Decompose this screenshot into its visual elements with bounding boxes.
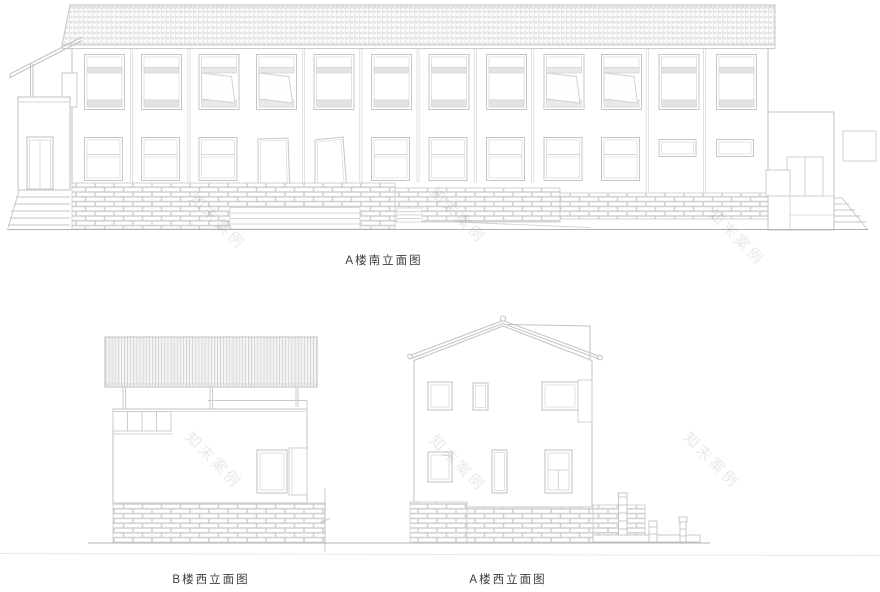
south-small-steps <box>397 208 422 222</box>
upper-window <box>659 55 699 110</box>
lower-window <box>544 138 582 181</box>
b-west-roof-posts <box>123 387 298 409</box>
south-left-porch <box>18 97 70 190</box>
south-left-stairs <box>8 191 70 228</box>
a-west-elevation <box>408 316 700 543</box>
upper-window <box>314 55 354 110</box>
lower-window <box>142 138 180 181</box>
upper-window-open <box>602 55 642 110</box>
lower-window <box>85 138 123 181</box>
lower-window <box>372 138 410 181</box>
lower-window <box>199 138 237 181</box>
south-right-annex <box>766 112 876 230</box>
lower-window <box>602 138 640 181</box>
drawing-canvas <box>0 0 880 592</box>
lower-window-small <box>659 140 696 157</box>
south-upper-windows <box>85 55 757 110</box>
b-west-railing <box>113 412 173 435</box>
upper-window-open <box>257 55 297 110</box>
sheet-baseline <box>0 554 880 556</box>
side-structure <box>843 131 876 161</box>
ramp-line <box>455 222 590 228</box>
b-west-window <box>257 448 307 495</box>
label-a-south-elevation: A楼南立面图 <box>345 252 422 268</box>
upper-window <box>372 55 412 110</box>
south-right-stairs <box>834 198 867 229</box>
south-roof-fascia <box>62 45 775 49</box>
upper-window <box>85 55 125 110</box>
b-west-elevation <box>105 337 330 552</box>
lower-window <box>429 138 467 181</box>
label-a-west-elevation: A楼西立面图 <box>469 571 546 587</box>
porch-door <box>27 137 53 189</box>
upper-window <box>429 55 469 110</box>
label-b-west-elevation: B楼西立面图 <box>172 571 249 587</box>
b-west-brick-base <box>113 503 325 543</box>
wall-box <box>578 380 592 422</box>
b-west-roof <box>105 337 317 387</box>
south-elevation <box>7 5 876 230</box>
south-roof <box>62 5 775 49</box>
upper-window <box>142 55 182 110</box>
upper-window <box>487 55 527 110</box>
south-entrance-steps <box>230 208 360 230</box>
upper-window <box>717 55 757 110</box>
upper-window-open <box>544 55 584 110</box>
south-brick-base <box>72 183 768 229</box>
cross-window <box>545 450 572 493</box>
upper-window-open <box>199 55 239 110</box>
lower-window <box>487 138 525 181</box>
lower-window-small <box>717 140 754 157</box>
